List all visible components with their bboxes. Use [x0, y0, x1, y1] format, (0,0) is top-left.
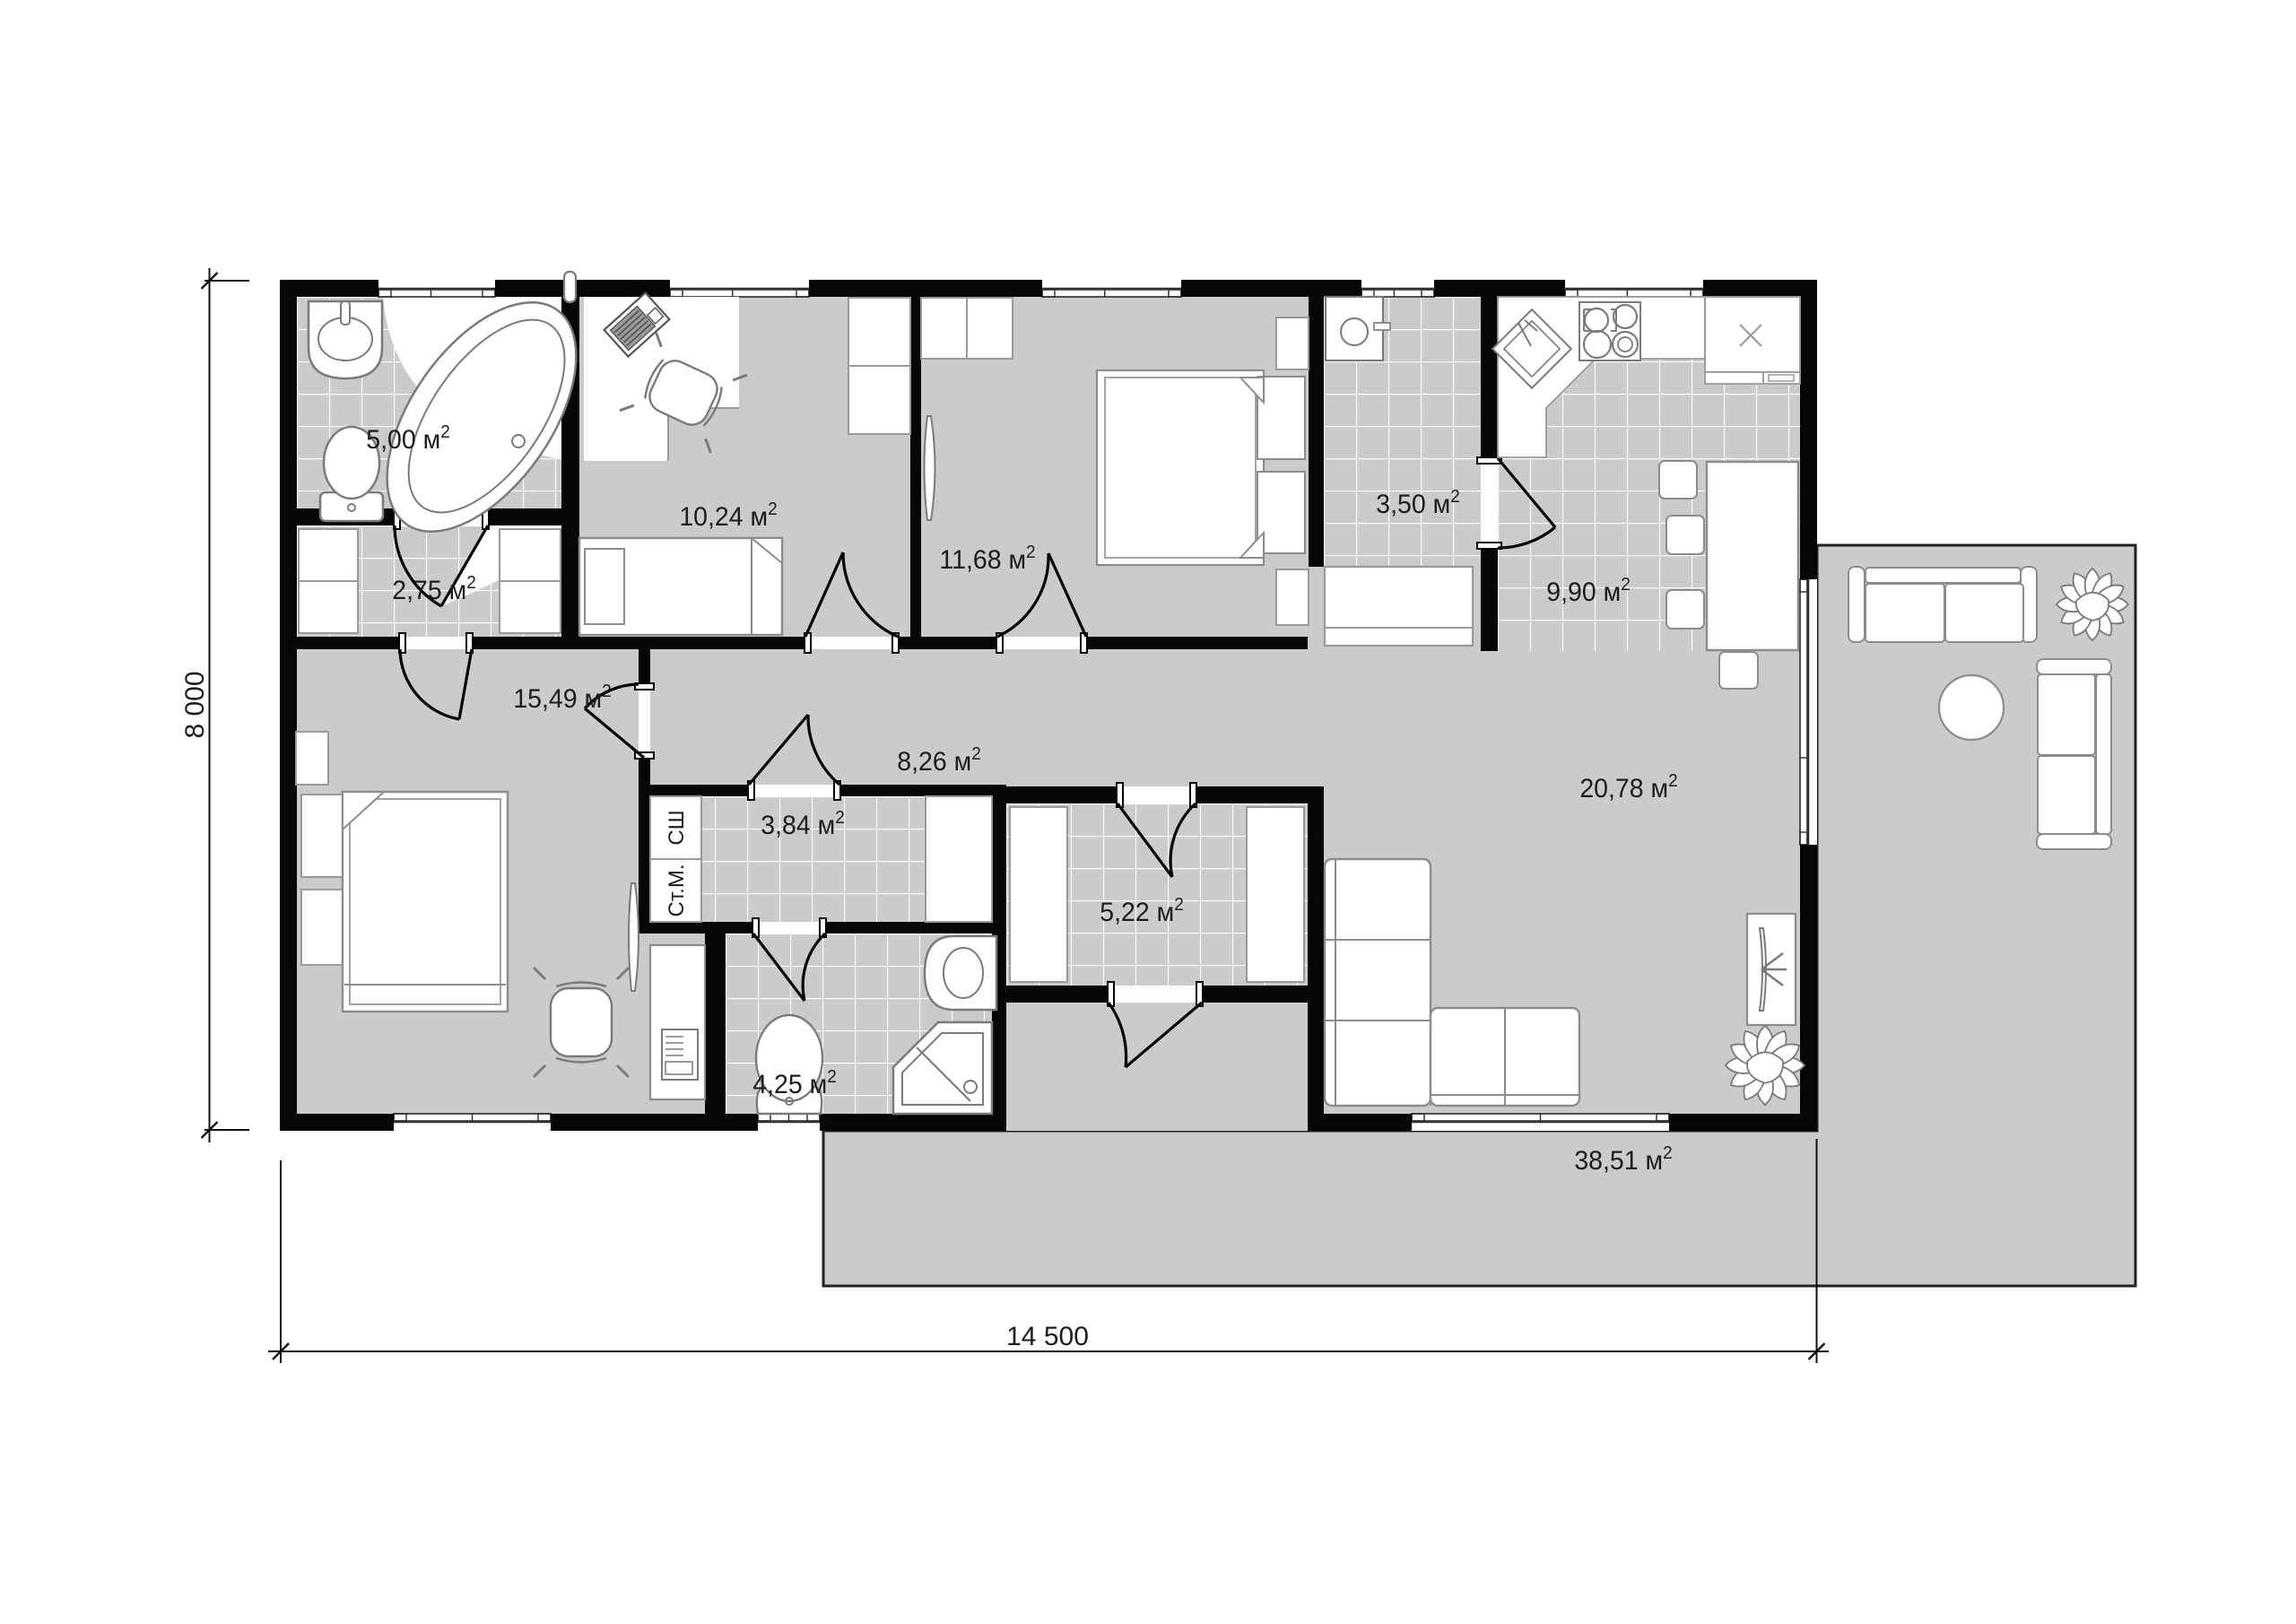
svg-text:15,49 м2: 15,49 м2: [513, 682, 611, 715]
svg-text:8 000: 8 000: [180, 671, 210, 738]
svg-text:20,78 м2: 20,78 м2: [1579, 771, 1677, 804]
svg-text:2,75 м2: 2,75 м2: [392, 573, 476, 606]
svg-text:3,50 м2: 3,50 м2: [1376, 487, 1460, 520]
svg-text:3,84 м2: 3,84 м2: [761, 808, 845, 841]
svg-text:10,24 м2: 10,24 м2: [679, 499, 777, 533]
svg-text:Ст.М.: Ст.М.: [665, 864, 689, 917]
svg-text:9,90 м2: 9,90 м2: [1546, 575, 1631, 608]
svg-text:5,00 м2: 5,00 м2: [366, 422, 450, 456]
svg-text:11,68 м2: 11,68 м2: [939, 543, 1035, 576]
svg-text:14 500: 14 500: [1006, 1322, 1089, 1351]
svg-text:8,26 м2: 8,26 м2: [897, 744, 981, 777]
svg-text:4,25 м2: 4,25 м2: [752, 1067, 837, 1100]
svg-text:5,22 м2: 5,22 м2: [1100, 895, 1184, 928]
svg-text:СШ: СШ: [665, 810, 689, 845]
svg-text:38,51 м2: 38,51 м2: [1574, 1143, 1672, 1177]
